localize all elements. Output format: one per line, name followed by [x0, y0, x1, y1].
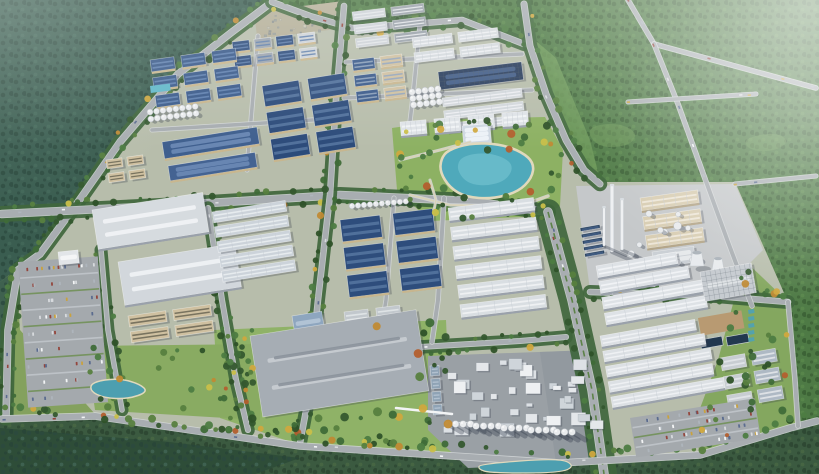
industrial-park-aerial-render [0, 0, 819, 474]
render-canvas [0, 0, 819, 474]
haze-topleft-cool [0, 0, 819, 474]
aerial-scene-svg [0, 0, 819, 474]
